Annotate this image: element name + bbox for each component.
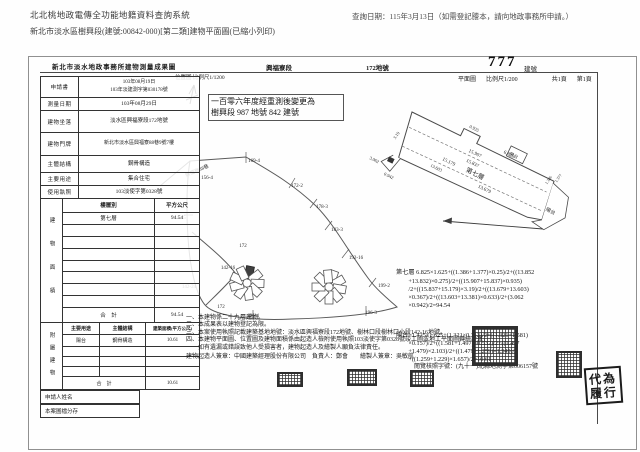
- annex-header-row: 主要用途 主體結構 建築面積(平方公尺): [63, 323, 199, 335]
- builder-signature-line: 建物起造人簽章：中國建築經理股份有限公司 負責人：鄭會 繪製人簽章：吳敏航: [186, 351, 414, 360]
- form-value: 新北市淡水區興福寮88巷9號7樓: [79, 133, 199, 155]
- form-label: 建物坐落: [41, 111, 79, 132]
- annex-data-row: 陽台 鋼骨構造 10.61: [63, 335, 199, 347]
- area-side-label: 建物面積: [41, 199, 63, 322]
- table-empty-row: [63, 284, 199, 296]
- floor-name: 第七層: [63, 214, 154, 222]
- company-seal: [277, 372, 303, 387]
- table-empty-row: [63, 367, 199, 377]
- area-data-row: 第七層 94.54: [63, 213, 199, 225]
- form-label: 主要用途: [41, 173, 79, 185]
- total-label: 合 計: [63, 380, 145, 387]
- form-row-application: 申請書 103年08月19日 103年淡建測字第030178號: [41, 77, 199, 98]
- plan-scale: 比例尺1/200: [486, 74, 518, 83]
- section-name: 興福寮段: [266, 62, 292, 72]
- query-date: 查詢日期：115年3月13日（如需登記謄本，請向地政事務所申請。）: [352, 11, 573, 22]
- form-value: 103年08月19日 103年淡建測字第030178號: [79, 77, 199, 97]
- annex-total-row: 合 計 10.61: [63, 377, 199, 389]
- col-sqm: 平方公尺: [154, 199, 199, 212]
- area-header-row: 樓層別 平方公尺: [63, 199, 199, 213]
- document-subtitle: 新北市淡水區樹興段(建號:00842-000)[第二類]建物平面圖(已縮小列印): [30, 26, 275, 37]
- floor-area-calc: 第七層 6.825×1.625+((1.386+1.377)×0.25)/2+(…: [396, 269, 634, 310]
- form-label: 主體結構: [41, 156, 79, 172]
- form-value: 淡水區興福寮段172地號: [79, 111, 199, 132]
- note-item: 四、本建物平面圖、位置圖及建物面積係由起造人檢附使用執照103淡使字第0328號…: [186, 337, 616, 352]
- floor-area: 94.54: [154, 213, 199, 224]
- archive-box: 本案圖檔分存: [40, 404, 140, 418]
- table-empty-row: [63, 225, 199, 237]
- plan-map-label: 平面圖: [458, 74, 476, 83]
- form-label: 建物門牌: [41, 133, 79, 155]
- page-current: 第1頁: [577, 74, 592, 83]
- form-value: 鋼骨構造: [79, 156, 199, 172]
- total-label: 合 計: [63, 311, 154, 319]
- form-row-license: 使用執照 103淡使字第0328號: [41, 186, 199, 199]
- form-label: 申請書: [41, 77, 79, 97]
- principal-seal: [347, 369, 377, 386]
- form-row-structure: 主體結構 鋼骨構造: [41, 156, 199, 173]
- form-value: 103年08月29日: [79, 98, 199, 110]
- annex-use: 陽台: [63, 337, 99, 344]
- notes-list: 一、本建物係二十九層建物。 二、本成果表以建物登記為限。 三、本案使用執照記載建…: [186, 315, 616, 352]
- table-empty-row: [63, 249, 199, 261]
- drafter-seal: [410, 370, 434, 387]
- table-empty-row: [63, 261, 199, 273]
- table-empty-row: [63, 357, 199, 367]
- form-label: 測量日期: [41, 98, 79, 110]
- annex-side-label: 附屬建物: [41, 323, 63, 389]
- building-number-label: 建號: [524, 63, 537, 73]
- header-rule: [40, 72, 597, 73]
- resurvey-remark-box: 一百零六年度經重測後變更為 樹興段 987 地號 842 建號: [208, 94, 344, 121]
- form-title: 新北市淡水地政事務所建物測量成果圖: [52, 61, 176, 71]
- form-value: 集合住宅: [79, 173, 199, 185]
- form-value: 103淡使字第0328號: [79, 186, 199, 198]
- duty-stamp: 代為 履行: [584, 366, 623, 405]
- table-empty-row: [63, 347, 199, 357]
- building-area-section: 建物面積 樓層別 平方公尺 第七層 94.54 合 計: [41, 199, 199, 323]
- pages-total: 共1頁: [552, 74, 567, 83]
- table-empty-row: [63, 272, 199, 284]
- remark-line-1: 一百零六年度經重測後變更為: [211, 96, 341, 107]
- form-row-survey-date: 測量日期 103年08月29日: [41, 98, 199, 111]
- table-empty-row: [63, 237, 199, 249]
- form-row-use: 主要用途 集合住宅: [41, 173, 199, 186]
- office-large-seal: [472, 326, 518, 366]
- survey-form-table: 申請書 103年08月19日 103年淡建測字第030178號 測量日期 103…: [40, 76, 200, 390]
- area-total-row: 合 計 94.54: [63, 308, 199, 322]
- query-system-screen: 169-4 172-2 178-3 183-3 192-16 199-2 196…: [0, 0, 640, 452]
- land-number: 172地號: [366, 62, 389, 72]
- table-empty-row: [63, 296, 199, 308]
- applicant-name-box: 申請人姓名: [40, 390, 140, 404]
- annex-section: 附屬建物 主要用途 主體結構 建築面積(平方公尺) 陽台 鋼骨構造 10.61 …: [41, 323, 199, 389]
- duty-stamp-bottom: 履行: [590, 385, 619, 401]
- annex-structure: 鋼骨構造: [99, 335, 145, 346]
- col-structure: 主體結構: [99, 323, 145, 334]
- review-seal: [556, 351, 582, 378]
- total-value: 10.61: [145, 377, 199, 389]
- building-number: 777: [488, 54, 517, 71]
- note-item: 二、本成果表以建物登記為限。: [186, 322, 616, 329]
- form-label: 使用執照: [41, 186, 79, 198]
- form-row-location: 建物坐落 淡水區興福寮段172地號: [41, 111, 199, 133]
- form-row-address: 建物門牌 新北市淡水區興福寮88巷9號7樓: [41, 133, 199, 156]
- col-use: 主要用途: [63, 325, 99, 332]
- plan-header: 平面圖 比例尺1/200 共1頁 第1頁: [458, 74, 592, 83]
- remark-line-2: 樹興段 987 地號 842 建號: [211, 107, 341, 118]
- system-title: 北北桃地政電傳全功能地籍資料查詢系統: [30, 9, 190, 21]
- col-floor: 樓層別: [63, 201, 154, 209]
